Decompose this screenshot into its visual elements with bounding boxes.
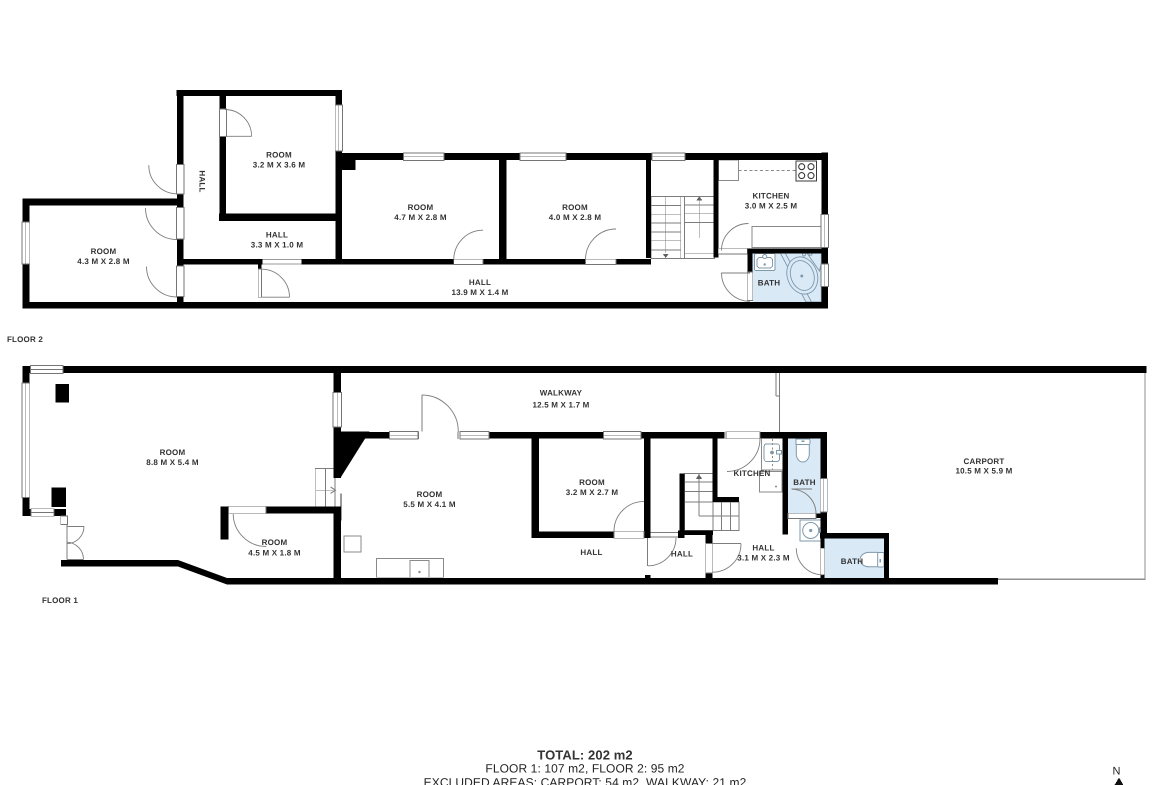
svg-text:ROOM: ROOM (562, 203, 588, 212)
svg-text:8.8 M X 5.4 M: 8.8 M X 5.4 M (146, 458, 199, 467)
svg-text:12.5 M X 1.7 M: 12.5 M X 1.7 M (532, 401, 589, 410)
svg-text:ROOM: ROOM (417, 490, 443, 499)
svg-text:ROOM: ROOM (262, 538, 288, 547)
svg-text:ROOM: ROOM (160, 448, 186, 457)
svg-text:10.5 M X 5.9 M: 10.5 M X 5.9 M (955, 467, 1012, 476)
svg-text:3.3 M X 1.0 M: 3.3 M X 1.0 M (251, 241, 304, 250)
svg-text:HALL: HALL (266, 231, 288, 240)
svg-text:3.2 M X 3.6 M: 3.2 M X 3.6 M (253, 161, 306, 170)
svg-text:3.0 M X 2.5 M: 3.0 M X 2.5 M (745, 202, 798, 211)
svg-text:WALKWAY: WALKWAY (540, 389, 583, 398)
svg-text:FLOOR 2: FLOOR 2 (7, 335, 43, 344)
svg-text:ROOM: ROOM (579, 478, 605, 487)
svg-text:3.1 M X 2.3 M: 3.1 M X 2.3 M (737, 554, 790, 563)
svg-text:HALL: HALL (752, 544, 774, 553)
svg-text:N: N (1113, 766, 1121, 778)
svg-text:BATH: BATH (758, 279, 780, 288)
svg-text:EXCLUDED AREAS: CARPORT: 54 m2: EXCLUDED AREAS: CARPORT: 54 m2, WALKWAY:… (424, 776, 747, 785)
svg-text:KITCHEN: KITCHEN (734, 469, 771, 478)
svg-text:ROOM: ROOM (266, 151, 292, 160)
svg-text:BATH: BATH (841, 557, 863, 566)
svg-text:4.3 M X 2.8 M: 4.3 M X 2.8 M (77, 257, 130, 266)
svg-text:HALL: HALL (469, 278, 491, 287)
svg-text:CARPORT: CARPORT (964, 457, 1005, 466)
svg-text:BATH: BATH (793, 478, 815, 487)
svg-text:4.7 M X 2.8 M: 4.7 M X 2.8 M (394, 213, 447, 222)
svg-text:ROOM: ROOM (91, 247, 117, 256)
svg-text:3.2 M X 2.7 M: 3.2 M X 2.7 M (566, 488, 619, 497)
svg-text:4.0 M X 2.8 M: 4.0 M X 2.8 M (549, 213, 602, 222)
svg-text:5.5 M X 4.1 M: 5.5 M X 4.1 M (403, 500, 456, 509)
svg-text:HALL: HALL (198, 170, 207, 192)
svg-text:HALL: HALL (671, 550, 693, 559)
svg-text:FLOOR 1: FLOOR 1 (42, 596, 78, 605)
svg-text:TOTAL: 202 m2: TOTAL: 202 m2 (537, 747, 632, 762)
svg-text:13.9 M X 1.4 M: 13.9 M X 1.4 M (451, 288, 508, 297)
svg-text:FLOOR 1: 107 m2, FLOOR 2: 95 m: FLOOR 1: 107 m2, FLOOR 2: 95 m2 (485, 762, 684, 776)
svg-text:ROOM: ROOM (408, 203, 434, 212)
svg-text:HALL: HALL (580, 548, 602, 557)
svg-text:4.5 M X 1.8 M: 4.5 M X 1.8 M (248, 549, 301, 558)
svg-text:KITCHEN: KITCHEN (753, 192, 790, 201)
